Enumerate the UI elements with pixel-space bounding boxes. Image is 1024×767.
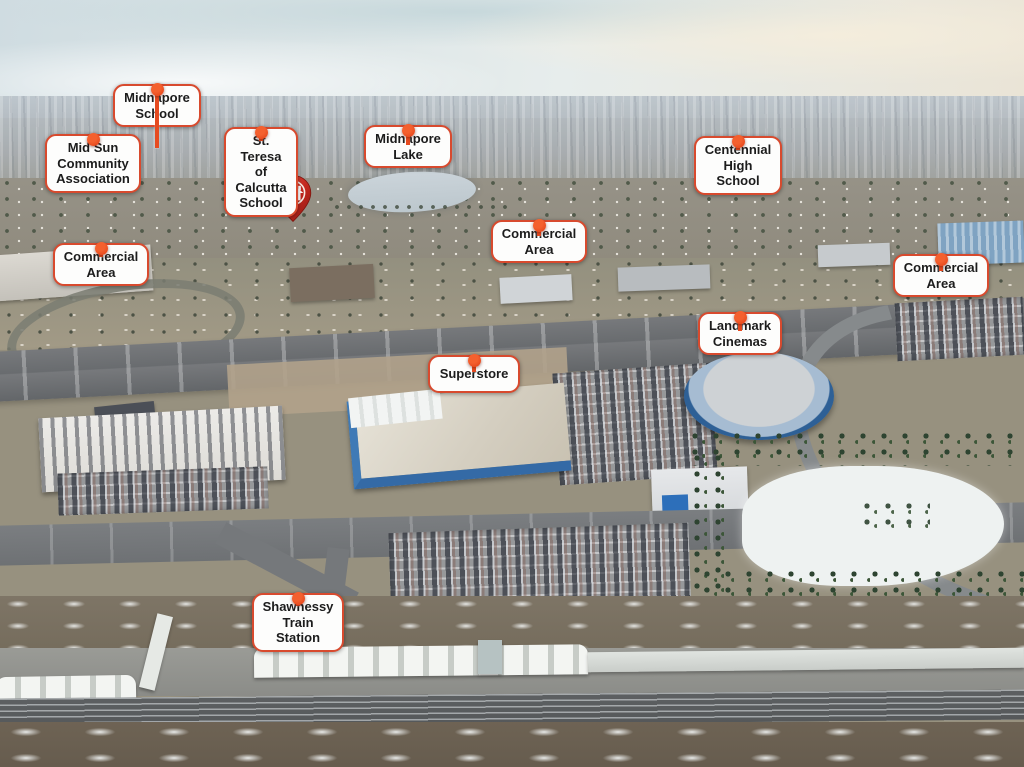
station-tower (478, 640, 502, 674)
location-dot (732, 135, 745, 148)
evergreen-trees (688, 430, 1024, 466)
scrubland (0, 722, 1024, 767)
location-dot (734, 311, 747, 324)
location-dot (151, 83, 164, 96)
location-dot (402, 124, 415, 137)
location-dot (292, 592, 305, 605)
building-shape (618, 264, 711, 291)
lakeshore-trees (330, 200, 510, 216)
building-shape (499, 274, 572, 304)
building-shape (289, 264, 375, 302)
location-dot (533, 219, 546, 232)
aerial-photo: Midnapore School Mid Sun Community Assoc… (0, 0, 1024, 767)
location-dot (255, 126, 268, 139)
location-dot (87, 133, 100, 146)
cinema-round-building (684, 352, 834, 440)
evergreen-trees (860, 500, 930, 530)
parking-lot (57, 466, 268, 515)
superstore-building (347, 383, 572, 490)
location-dot (95, 242, 108, 255)
building-shape (818, 243, 891, 267)
location-dot (935, 253, 948, 266)
location-dot (468, 354, 481, 367)
parking-lot (895, 297, 1024, 362)
